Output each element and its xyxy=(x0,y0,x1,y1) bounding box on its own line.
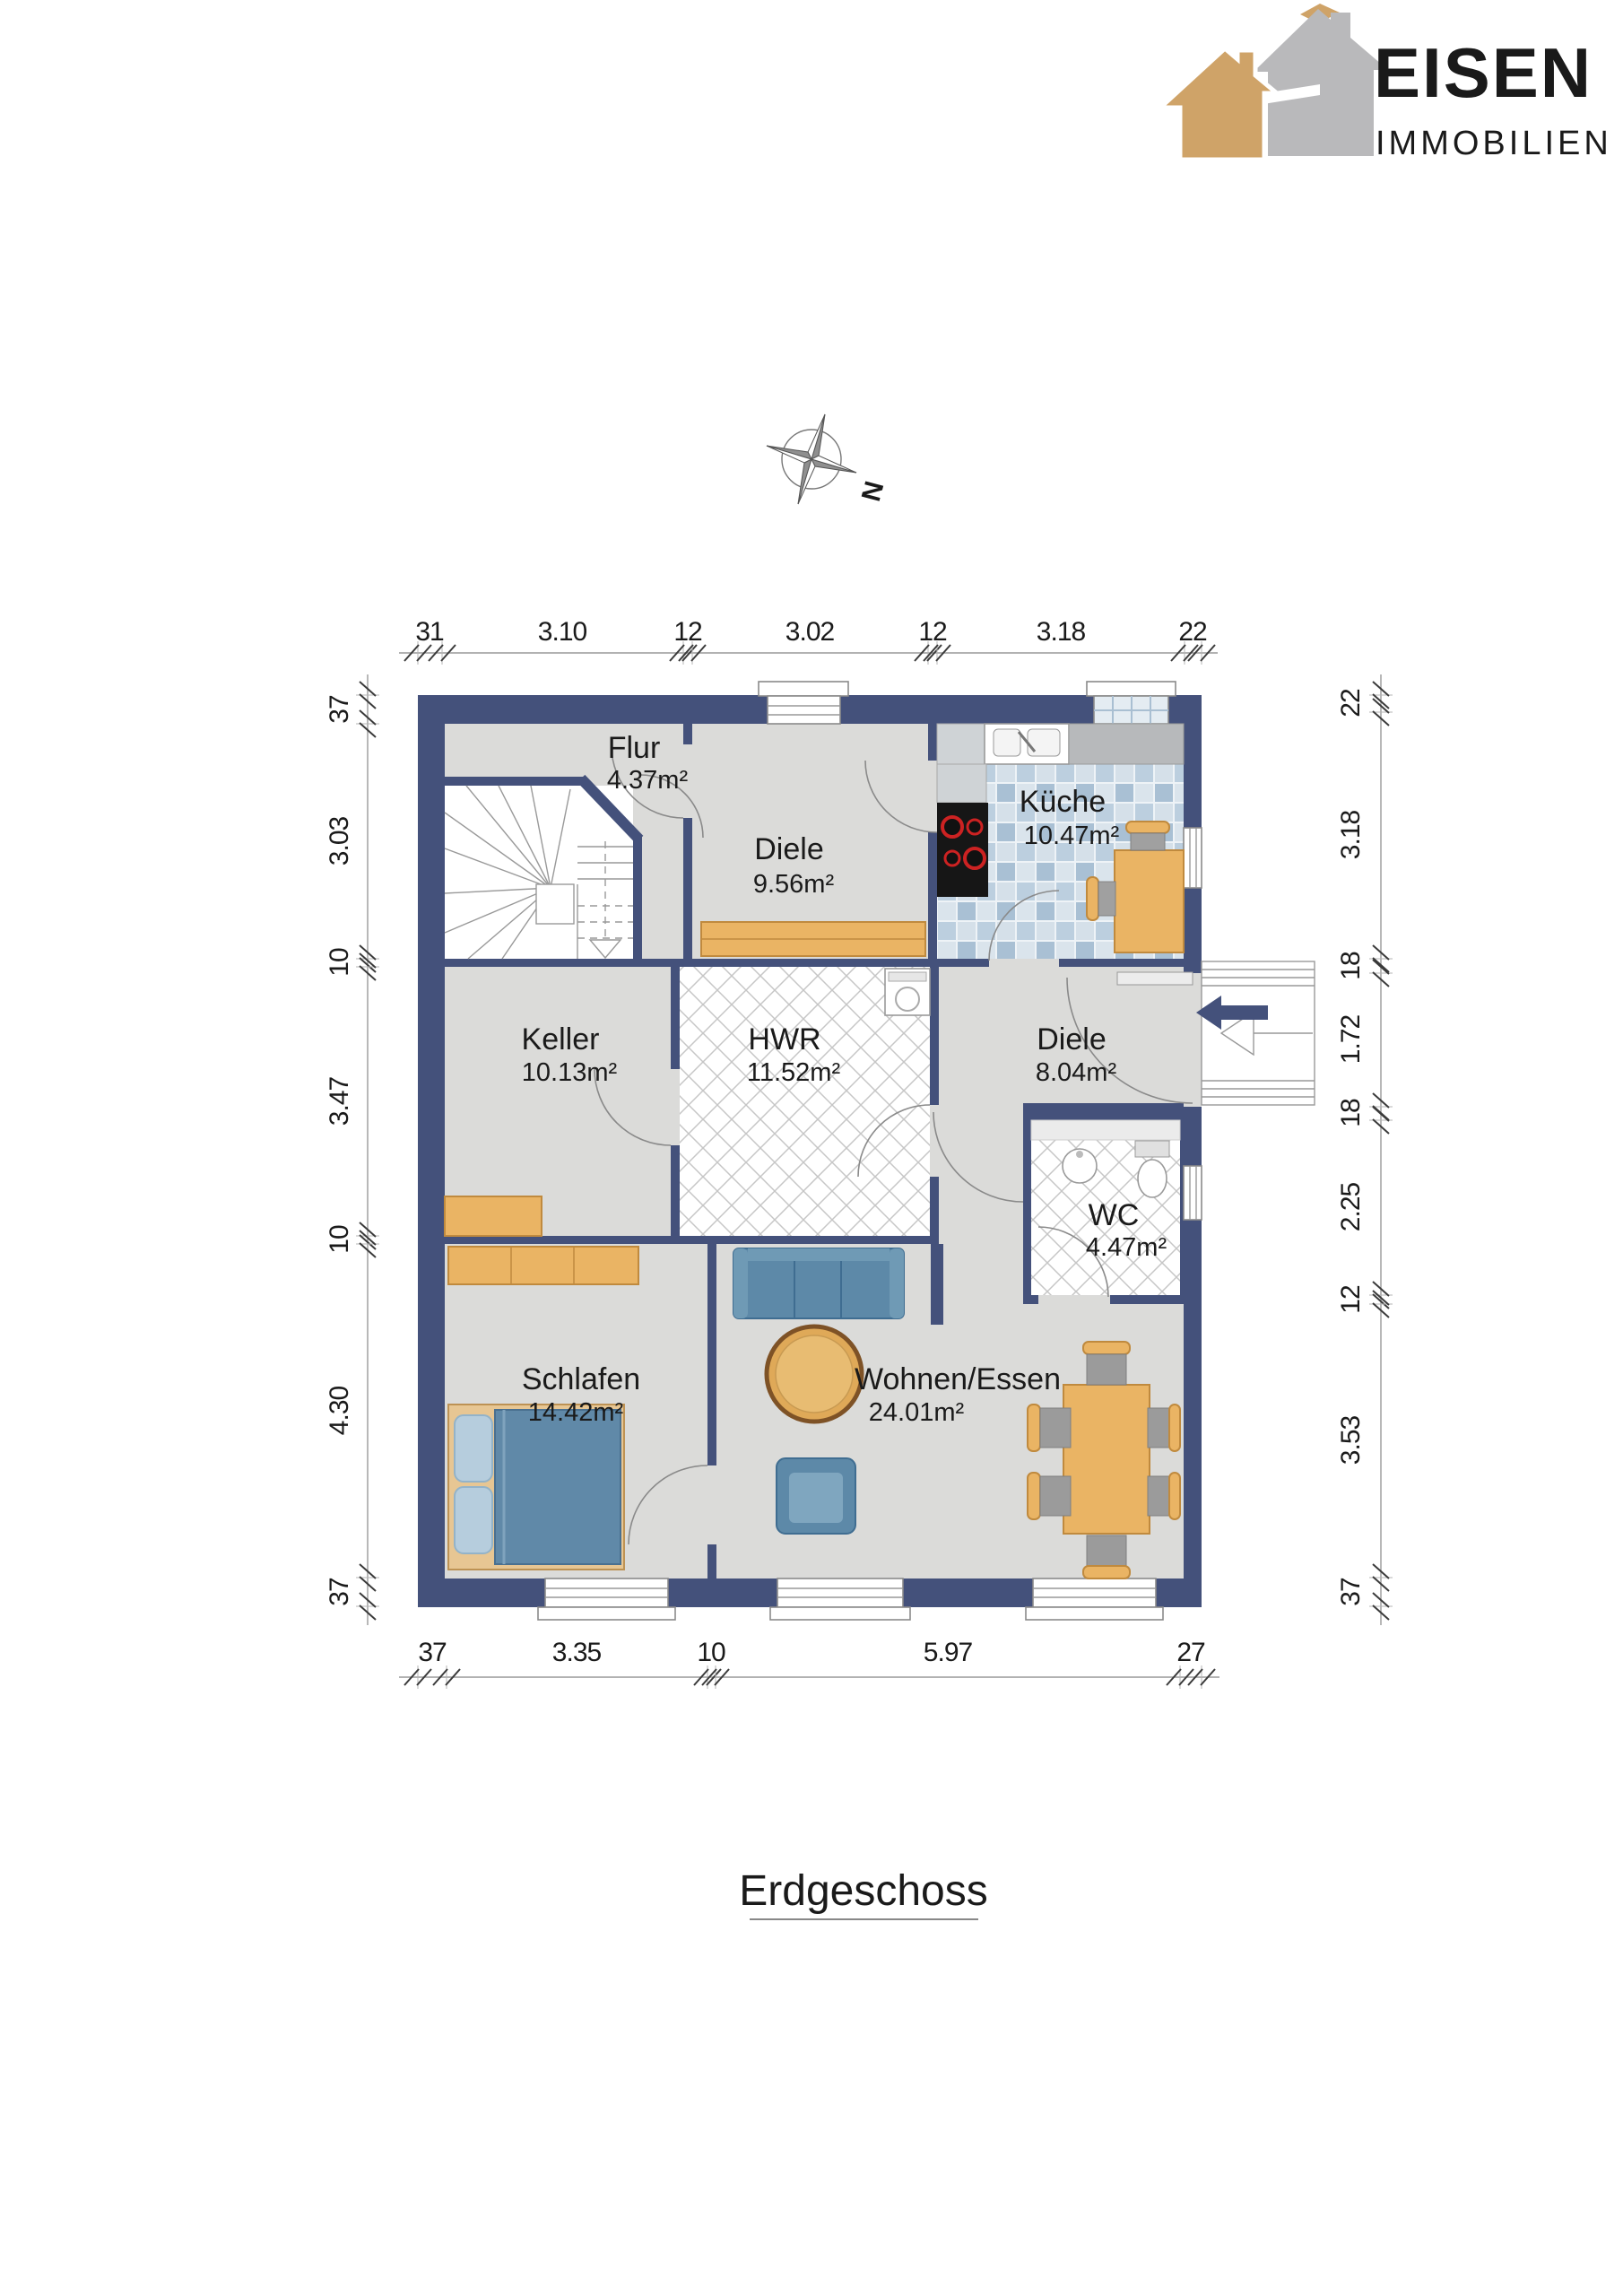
dim-right-6: 12 xyxy=(1336,1285,1366,1314)
dim-bottom-0: 37 xyxy=(418,1638,447,1667)
logo-house-icon xyxy=(1160,4,1388,160)
dim-left-5: 4.30 xyxy=(325,1386,354,1435)
staircase xyxy=(445,777,642,959)
dim-bottom-2: 10 xyxy=(697,1638,725,1667)
kitchen-counter xyxy=(1069,724,1184,764)
opening-kueche-diele2 xyxy=(989,959,1059,967)
room-label-hwr: HWR xyxy=(748,1022,820,1057)
room-area-hwr: 11.52m² xyxy=(747,1058,841,1087)
dim-left-6: 37 xyxy=(325,1578,354,1606)
room-label-keller: Keller xyxy=(522,1022,600,1057)
floorplan-page: Flur 4.37m² Diele 9.56m² Küche 10.47m² K… xyxy=(0,0,1623,2296)
room-label-diele: Diele xyxy=(754,832,823,866)
dim-top-3: 3.02 xyxy=(785,617,835,647)
wc-shelf xyxy=(1031,1120,1180,1140)
dim-top-1: 3.10 xyxy=(538,617,587,647)
dim-right-3: 1.72 xyxy=(1336,1014,1366,1064)
dim-top-4: 12 xyxy=(918,617,947,647)
floor-title: Erdgeschoss xyxy=(739,1867,987,1919)
dimension-top: 31 3.10 12 3.02 12 3.18 22 xyxy=(399,617,1218,665)
dim-right-4: 18 xyxy=(1336,1099,1366,1127)
dim-right-1: 3.18 xyxy=(1336,810,1366,859)
room-area-kueche: 10.47m² xyxy=(1024,822,1120,850)
room-area-diele2: 8.04m² xyxy=(1036,1058,1117,1087)
room-area-wc: 4.47m² xyxy=(1086,1233,1167,1262)
dim-right-8: 37 xyxy=(1336,1578,1366,1606)
wc-toilet-icon xyxy=(1138,1160,1167,1197)
room-area-diele: 9.56m² xyxy=(753,870,835,899)
dim-right-5: 2.25 xyxy=(1336,1182,1366,1231)
dim-top-5: 3.18 xyxy=(1037,617,1086,647)
dim-top-6: 22 xyxy=(1178,617,1207,647)
dimension-bottom: 37 3.35 10 5.97 27 xyxy=(399,1638,1219,1689)
opening-diele-kueche xyxy=(928,761,937,832)
dim-left-1: 3.03 xyxy=(325,816,354,865)
opening-entrance xyxy=(1184,973,1202,1107)
logo-sub-text: IMMOBILIEN xyxy=(1376,125,1612,162)
dim-bottom-4: 27 xyxy=(1176,1638,1205,1667)
opening-keller-hwr xyxy=(671,1069,680,1145)
dim-bottom-1: 3.35 xyxy=(552,1638,602,1667)
dim-top-0: 31 xyxy=(415,617,444,647)
logo-brand-text: EISEN xyxy=(1374,33,1593,112)
dimension-left: 37 3.03 10 3.47 10 4.30 37 xyxy=(325,674,379,1625)
north-label: N xyxy=(855,478,888,504)
dim-left-4: 10 xyxy=(325,1225,354,1254)
room-area-schlafen: 14.42m² xyxy=(528,1398,624,1427)
room-label-schlafen: Schlafen xyxy=(522,1362,640,1396)
opening-wc xyxy=(1038,1295,1110,1304)
room-label-diele2: Diele xyxy=(1037,1022,1106,1057)
kitchen-table xyxy=(1115,850,1184,952)
dim-left-2: 10 xyxy=(325,948,354,977)
dim-bottom-3: 5.97 xyxy=(924,1638,973,1667)
dim-right-2: 18 xyxy=(1336,952,1366,980)
room-label-kueche: Küche xyxy=(1020,785,1106,819)
floorplan-drawing: Flur 4.37m² Diele 9.56m² Küche 10.47m² K… xyxy=(0,0,1623,2296)
keller-bench xyxy=(445,1196,542,1236)
room-label-wc: WC xyxy=(1089,1198,1140,1232)
corridor-floor xyxy=(939,1103,1023,1244)
wc-toilet-tank xyxy=(1135,1141,1169,1157)
washing-machine-icon xyxy=(885,969,930,1015)
wardrobe xyxy=(448,1247,638,1284)
dim-right-0: 22 xyxy=(1336,689,1366,717)
page-title: Erdgeschoss xyxy=(739,1867,987,1915)
opening-schlafen xyxy=(707,1465,716,1544)
entrance-door-leaf xyxy=(1117,972,1193,985)
dim-left-0: 37 xyxy=(325,695,354,724)
floor-plan: Flur 4.37m² Diele 9.56m² Küche 10.47m² K… xyxy=(325,617,1393,1689)
compass-icon: N xyxy=(767,414,889,504)
room-area-wohnen: 24.01m² xyxy=(869,1398,965,1427)
entrance-steps xyxy=(1196,961,1315,1105)
room-area-flur: 4.37m² xyxy=(607,766,689,795)
wc-sink-tap xyxy=(1076,1151,1083,1158)
dim-right-7: 3.53 xyxy=(1336,1415,1366,1465)
dining-table-icon xyxy=(1063,1385,1150,1534)
logo: EISEN IMMOBILIEN xyxy=(1160,4,1612,162)
wall-stub xyxy=(931,1244,943,1325)
dimension-right: 22 3.18 18 1.72 18 2.25 12 3.53 37 xyxy=(1336,674,1393,1625)
room-area-keller: 10.13m² xyxy=(522,1058,618,1087)
room-label-wohnen: Wohnen/Essen xyxy=(855,1362,1061,1396)
room-label-flur: Flur xyxy=(608,731,661,765)
dim-top-2: 12 xyxy=(673,617,702,647)
dim-left-3: 3.47 xyxy=(325,1076,354,1126)
